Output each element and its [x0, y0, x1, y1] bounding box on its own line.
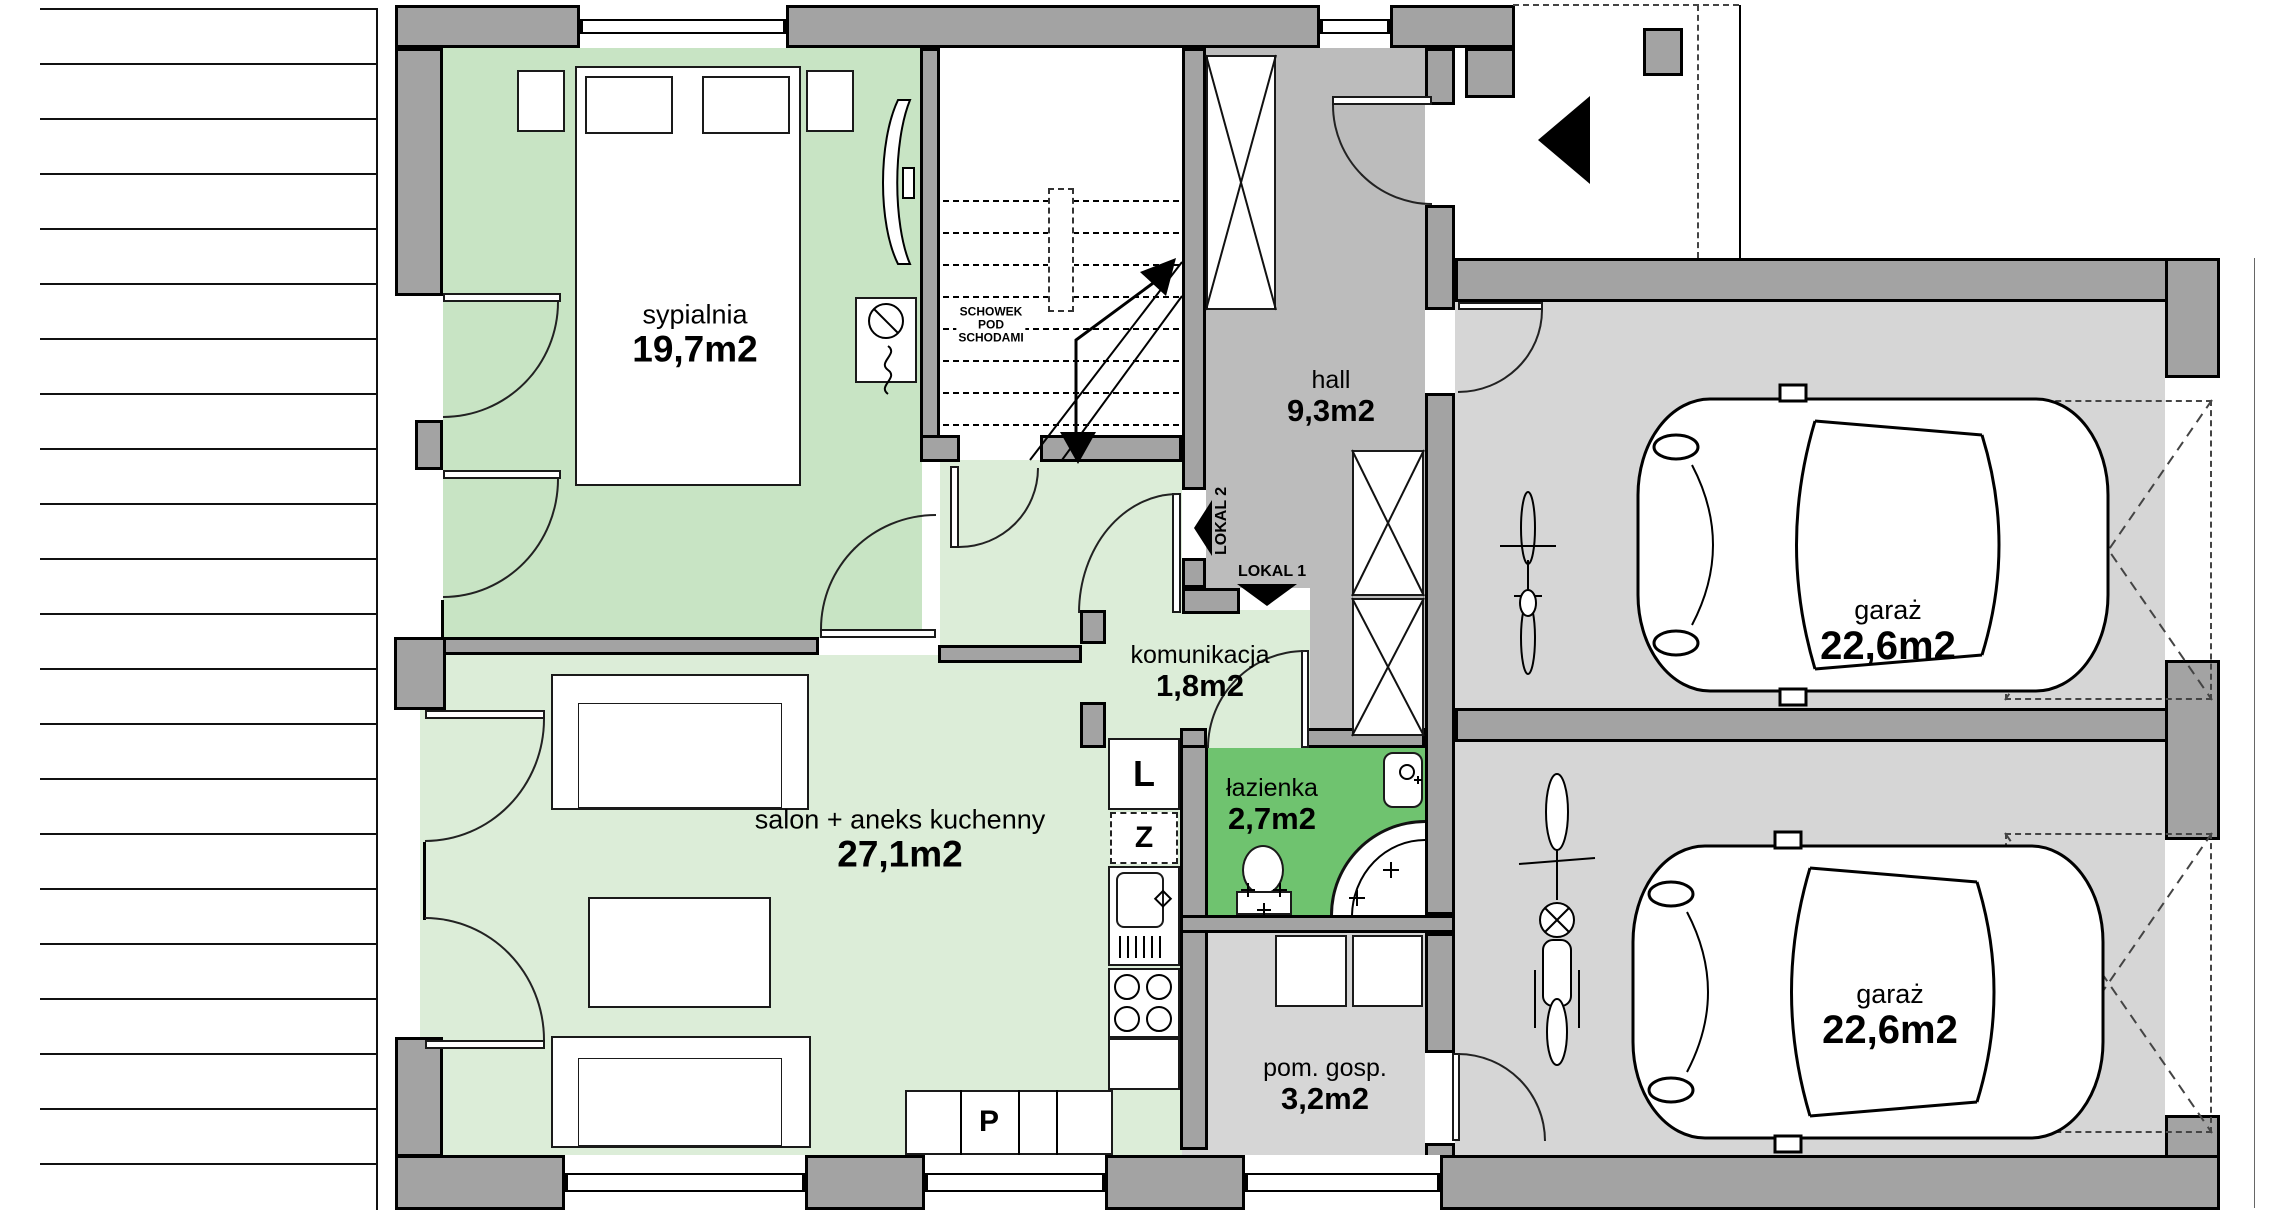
label-bedroom: sypialnia 19,7m2	[632, 300, 758, 369]
floor-plan: SCHOWEK POD SCHODAMI LOKAL 2 LOKAL 1 L Z…	[0, 0, 2289, 1216]
room-area: 19,7m2	[632, 330, 758, 370]
sink-details	[1120, 891, 1171, 958]
cooktop-burners	[1115, 975, 1171, 1031]
room-name: pom. gosp.	[1263, 1055, 1387, 1082]
room-area: 3,2m2	[1263, 1082, 1387, 1115]
room-area: 22,6m2	[1822, 1009, 1958, 1052]
room-name: garaż	[1822, 980, 1958, 1009]
room-name: komunikacja	[1131, 642, 1270, 669]
room-area: 1,8m2	[1131, 669, 1270, 702]
room-area: 2,7m2	[1226, 802, 1318, 835]
bicycle	[1500, 492, 1556, 674]
room-name: hall	[1287, 367, 1375, 394]
room-area: 22,6m2	[1820, 625, 1956, 668]
heater-symbol	[869, 304, 903, 394]
label-utility: pom. gosp. 3,2m2	[1263, 1055, 1387, 1115]
label-communication: komunikacja 1,8m2	[1131, 642, 1270, 702]
label-living-room: salon + aneks kuchenny 27,1m2	[755, 805, 1045, 874]
label-garage-top: garaż 22,6m2	[1820, 596, 1956, 668]
room-area: 27,1m2	[755, 835, 1045, 875]
label-hall: hall 9,3m2	[1287, 367, 1375, 427]
room-name: garaż	[1820, 596, 1956, 625]
room-name: salon + aneks kuchenny	[755, 805, 1045, 834]
bedroom-console	[883, 100, 914, 264]
room-area: 9,3m2	[1287, 394, 1375, 427]
stairs-direction-arrow	[1030, 258, 1182, 464]
label-bathroom: łazienka 2,7m2	[1226, 775, 1318, 835]
motorcycle	[1519, 774, 1595, 1065]
label-garage-bottom: garaż 22,6m2	[1822, 980, 1958, 1052]
room-name: łazienka	[1226, 775, 1318, 802]
room-name: sypialnia	[632, 300, 758, 329]
